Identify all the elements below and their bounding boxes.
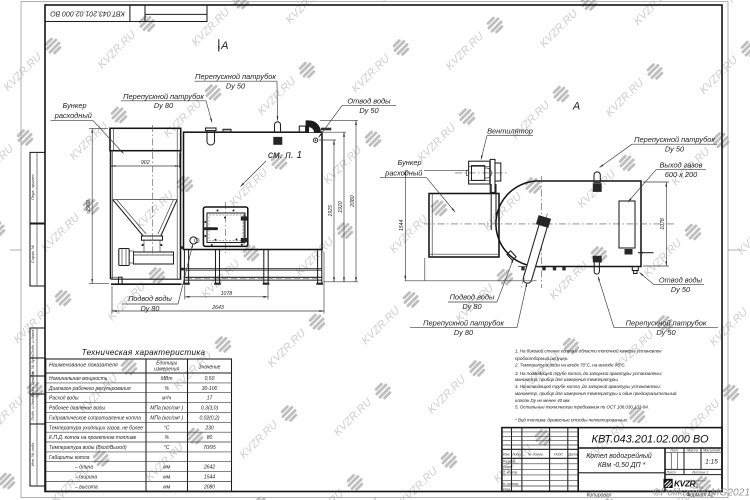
svg-text:Справ. №: Справ. № <box>30 244 35 263</box>
svg-text:902: 902 <box>141 160 150 166</box>
svg-text:Выход газов: Выход газов <box>659 160 702 169</box>
svg-text:2643: 2643 <box>211 305 224 311</box>
svg-text:Dy 50: Dy 50 <box>656 328 676 337</box>
svg-text:Значение: Значение <box>199 364 221 370</box>
svg-text:Расход воды: Расход воды <box>49 396 79 402</box>
svg-text:– ширина: – ширина <box>74 475 97 481</box>
svg-text:4. На отводящей трубе котла ,: 4. На отводящей трубе котла ,до запорной… <box>515 383 662 389</box>
svg-text:1078: 1078 <box>660 218 666 230</box>
svg-text:Перепускной патрубок: Перепускной патрубок <box>423 318 504 327</box>
svg-text:Подвод воды: Подвод воды <box>128 294 172 303</box>
svg-text:1:15: 1:15 <box>705 459 718 466</box>
svg-text:3. На подводящей трубе котла,: 3. На подводящей трубе котла, до запорно… <box>515 370 663 376</box>
svg-text:0,50: 0,50 <box>205 376 215 382</box>
svg-text:©Polikarpov MG2021: ©Polikarpov MG2021 <box>653 488 750 499</box>
svg-text:манометр, прибор для измерения: манометр, прибор для измерения температу… <box>515 377 619 382</box>
svg-text:Изм.: Изм. <box>503 452 511 456</box>
svg-text:Габариты котла: Габариты котла <box>49 455 90 461</box>
svg-text:Перв. примен.: Перв. примен. <box>30 173 35 200</box>
svg-text:МВт: МВт <box>161 376 173 382</box>
svg-text:Лист: Лист <box>665 471 675 475</box>
svg-text:Инв. № подл.: Инв. № подл. <box>30 442 35 467</box>
svg-text:манометр, прибор для измерения: манометр, прибор для измерения температу… <box>515 390 677 396</box>
svg-text:2080: 2080 <box>350 195 356 208</box>
svg-text:расходный: расходный <box>54 111 92 120</box>
svg-text:Dy 50: Dy 50 <box>671 285 691 294</box>
svg-text:Взам. инв. №: Взам. инв. № <box>30 371 35 396</box>
svg-text:измерения: измерения <box>154 367 179 373</box>
svg-text:Бункер: Бункер <box>397 158 421 167</box>
svg-text:0,3(3,0): 0,3(3,0) <box>201 406 219 412</box>
svg-text:1925: 1925 <box>328 205 334 217</box>
svg-text:Котел водогрейный: Котел водогрейный <box>586 452 652 460</box>
svg-text:Копировал: Копировал <box>587 492 612 498</box>
svg-text:МПа (кгс/см² ): МПа (кгс/см² ) <box>150 406 183 412</box>
svg-text:%: % <box>164 435 169 441</box>
svg-text:А: А <box>572 101 580 113</box>
svg-text:№ докум.: № докум. <box>528 452 544 456</box>
svg-text:1078: 1078 <box>221 291 233 297</box>
svg-text:2642: 2642 <box>203 465 215 471</box>
svg-text:Подп.: Подп. <box>554 452 564 456</box>
svg-text:Dy 80: Dy 80 <box>141 304 160 313</box>
svg-text:30-100: 30-100 <box>202 386 218 392</box>
svg-text:Разраб.: Разраб. <box>503 460 516 464</box>
svg-text:мм: мм <box>163 475 170 481</box>
svg-text:Диапазон рабочего регулировани: Диапазон рабочего регулирования <box>48 386 131 392</box>
svg-text:КВТ.043.201.02.000 ВО: КВТ.043.201.02.000 ВО <box>50 10 125 17</box>
svg-text:Вентилятор: Вентилятор <box>487 126 533 135</box>
svg-text:Масштаб: Масштаб <box>703 449 721 453</box>
svg-text:Листов 1: Листов 1 <box>691 471 708 475</box>
svg-text:Утв.: Утв. <box>503 488 511 492</box>
svg-text:%: % <box>164 386 169 392</box>
svg-text:1544: 1544 <box>399 219 405 231</box>
svg-text:0,02(0,2): 0,02(0,2) <box>199 415 219 421</box>
svg-text:1544: 1544 <box>204 475 215 481</box>
svg-text:2. Температура воды на входе: 2. Температура воды на входе 70°С, на вы… <box>514 363 626 368</box>
svg-text:МПа (кгс/см² ): МПа (кгс/см² ) <box>150 415 183 421</box>
svg-text:Подвод воды: Подвод воды <box>450 293 495 302</box>
svg-text:Перепускной патрубок: Перепускной патрубок <box>626 318 707 327</box>
svg-text:Dy 80: Dy 80 <box>154 101 174 110</box>
svg-text:К.П.Д. котла на проектном топл: К.П.Д. котла на проектном топливе <box>49 435 137 441</box>
svg-text:Лит.: Лит. <box>669 449 678 453</box>
svg-text:Перепускной патрубок: Перепускной патрубок <box>195 72 276 81</box>
svg-text:Dy 50: Dy 50 <box>226 81 246 90</box>
svg-text:Техническая характеристика: Техническая характеристика <box>82 348 206 357</box>
svg-text:А: А <box>220 40 228 52</box>
svg-text:пробоотборный штуцер.: пробоотборный штуцер. <box>515 355 568 361</box>
svg-text:2080: 2080 <box>203 485 215 491</box>
svg-text:Dy 50: Dy 50 <box>665 144 685 153</box>
svg-text:мм: мм <box>163 465 170 471</box>
svg-text:Гидравлическое сопротивление к: Гидравлическое сопротивление котла <box>49 415 141 421</box>
svg-text:70/95: 70/95 <box>203 445 216 451</box>
svg-text:Пров.: Пров. <box>503 465 512 469</box>
svg-text:°С: °С <box>164 425 170 431</box>
svg-text:см. п. 1: см. п. 1 <box>268 150 302 161</box>
svg-text:Температура уходящих газов, не: Температура уходящих газов, не более <box>49 425 143 431</box>
svg-text:клапан Dу не менее 40 мм.: клапан Dу не менее 40 мм. <box>515 398 570 403</box>
svg-text:КВТ.043.201.02.000 ВО: КВТ.043.201.02.000 ВО <box>591 434 708 446</box>
svg-text:Перепускной патрубок: Перепускной патрубок <box>634 135 715 144</box>
svg-text:Подп. и дата: Подп. и дата <box>30 329 35 355</box>
svg-text:Рабочее давление воды: Рабочее давление воды <box>49 406 105 412</box>
svg-text:Dy 80: Dy 80 <box>462 302 482 311</box>
svg-text:КВм -0,50 ДП *: КВм -0,50 ДП * <box>598 462 646 469</box>
svg-text:°С: °С <box>164 445 170 451</box>
svg-text:расходный: расходный <box>384 168 422 177</box>
svg-text:Т. контр.: Т. контр. <box>503 471 519 475</box>
svg-text:Номинальная мощность: Номинальная мощность <box>49 376 108 382</box>
svg-text:1960: 1960 <box>86 200 92 212</box>
svg-text:Дата: Дата <box>567 452 577 456</box>
svg-text:Dy 50: Dy 50 <box>359 106 379 115</box>
svg-text:* Вид топлива: древесные отх: * Вид топлива: древесные отходы пеллетир… <box>515 418 628 423</box>
svg-text:м³/ч: м³/ч <box>162 396 171 402</box>
svg-text:Перепускной патрубок: Перепускной патрубок <box>123 92 204 101</box>
svg-text:230: 230 <box>204 425 214 431</box>
svg-text:– высота: – высота <box>74 485 98 491</box>
svg-text:Н. контр.: Н. контр. <box>503 482 519 486</box>
svg-text:Масса: Масса <box>687 449 698 453</box>
svg-text:Лист: Лист <box>511 452 521 456</box>
svg-text:Подп. и дата: Подп. и дата <box>30 395 35 421</box>
svg-text:1920: 1920 <box>338 201 344 213</box>
svg-text:Наименование показателя: Наименование показателя <box>49 362 118 368</box>
svg-text:Отвод воды: Отвод воды <box>659 275 703 284</box>
svg-text:80: 80 <box>207 435 213 441</box>
svg-text:600 x 200: 600 x 200 <box>665 170 698 179</box>
svg-text:– длина: – длина <box>74 465 93 471</box>
svg-text:Температура воды (Вход/Выход): Температура воды (Вход/Выход) <box>49 445 127 451</box>
svg-text:Отвод воды: Отвод воды <box>347 96 391 105</box>
svg-text:1. На боковой стенке котла в: 1. На боковой стенке котла в области топ… <box>515 348 662 354</box>
svg-text:Dy 80: Dy 80 <box>454 328 474 337</box>
svg-text:17: 17 <box>207 396 213 402</box>
svg-text:Бункер: Бункер <box>62 101 86 110</box>
svg-text:мм: мм <box>163 485 170 491</box>
svg-text:5. Остальные технические треб: 5. Остальные технические требования по О… <box>515 404 649 409</box>
